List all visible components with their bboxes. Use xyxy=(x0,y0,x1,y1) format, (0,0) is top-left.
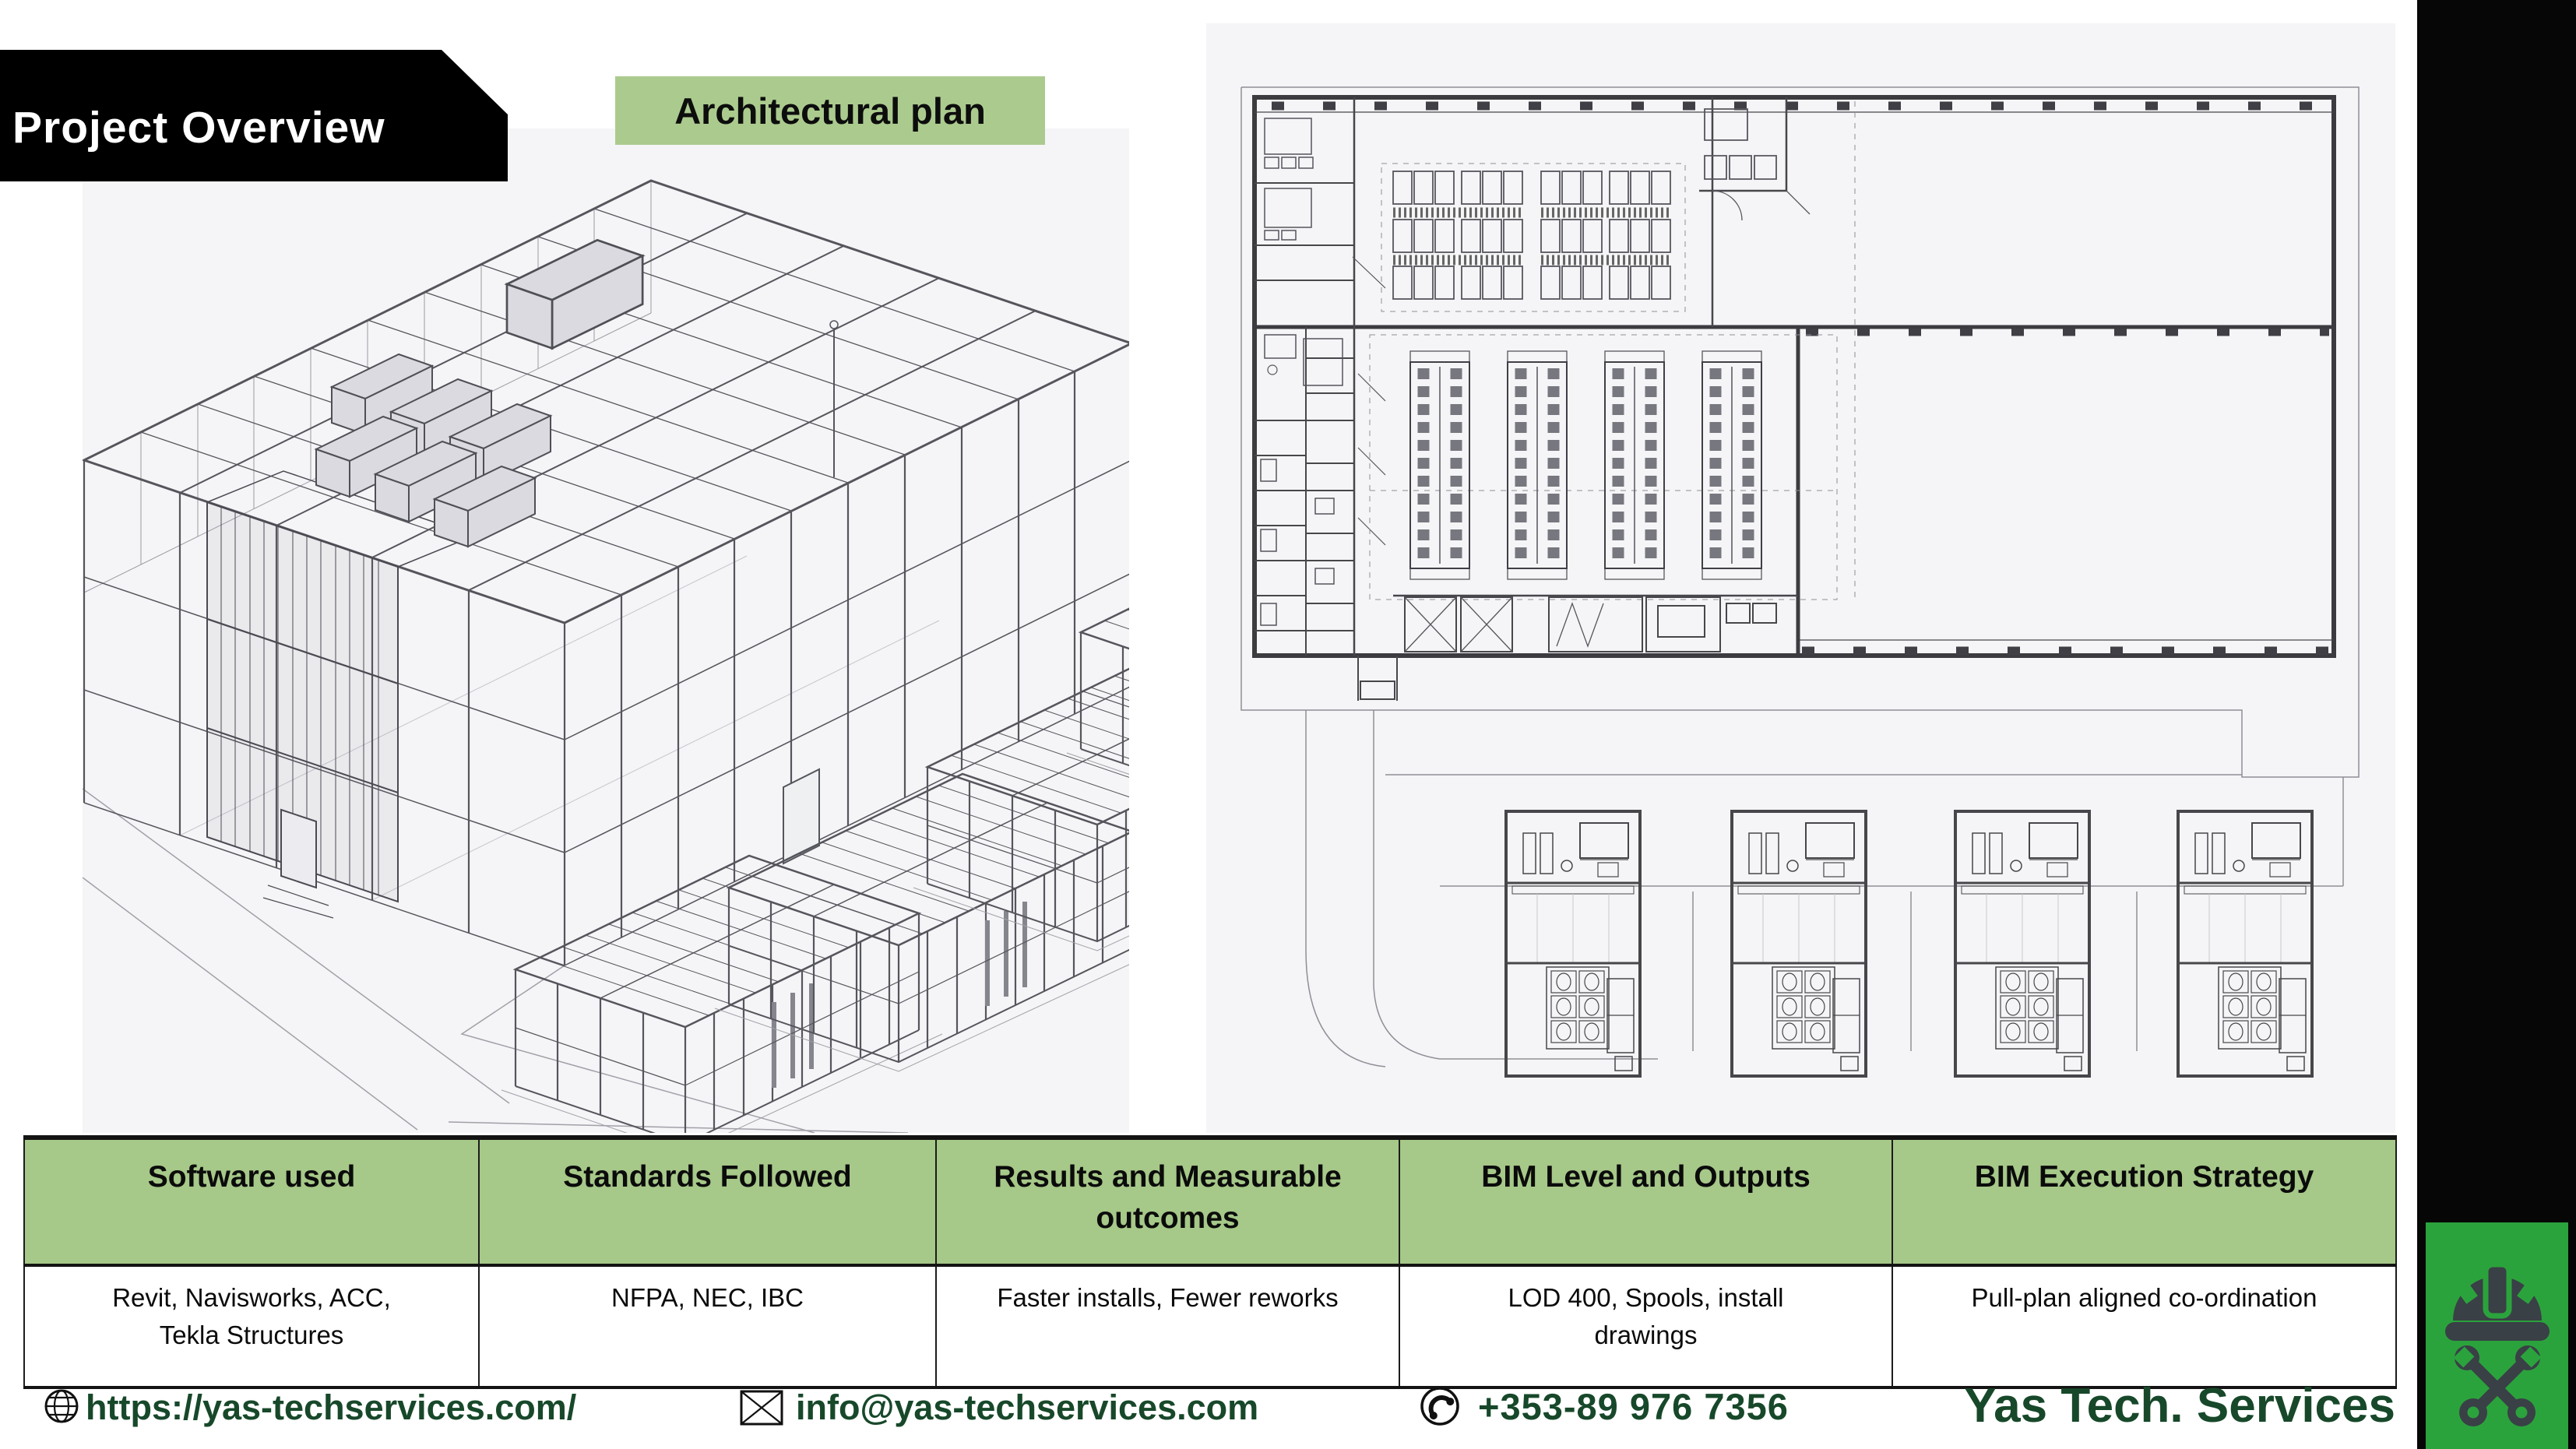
isometric-drawing-area xyxy=(83,128,1129,1133)
header-software-used: Software used xyxy=(24,1138,479,1265)
website-link[interactable]: https://yas-techservices.com/ xyxy=(86,1387,576,1428)
cell-bim-execution-strategy: Pull-plan aligned co-ordination xyxy=(1892,1265,2396,1387)
phone-number: +353-89 976 7356 xyxy=(1478,1385,1789,1428)
header-standards-followed: Standards Followed xyxy=(479,1138,936,1265)
globe-icon xyxy=(43,1387,80,1425)
image-caption-label: Architectural plan xyxy=(615,76,1045,145)
header-bim-execution-strategy: BIM Execution Strategy xyxy=(1892,1138,2396,1265)
table-row: Revit, Navisworks, ACC, Tekla Structures… xyxy=(24,1265,2396,1387)
project-specs-table: Software used Standards Followed Results… xyxy=(23,1135,2397,1389)
title-banner: Project Overview xyxy=(0,50,508,181)
cell-results-outcomes: Faster installs, Fewer reworks xyxy=(936,1265,1399,1387)
header-bim-level-outputs: BIM Level and Outputs xyxy=(1399,1138,1892,1265)
email-link[interactable]: info@yas-techservices.com xyxy=(796,1387,1258,1428)
isometric-wireframe-drawing xyxy=(83,128,1129,1133)
architectural-floorplan-drawing xyxy=(1206,23,2395,1133)
cell-bim-level-outputs: LOD 400, Spools, install drawings xyxy=(1399,1265,1892,1387)
hardhat-crossed-wrenches-icon xyxy=(2439,1243,2556,1430)
table-header-row: Software used Standards Followed Results… xyxy=(24,1138,2396,1265)
slide-canvas: Project Overview Architectural plan Soft… xyxy=(0,0,2576,1449)
sidebar-black-strip xyxy=(2417,0,2576,1449)
phone-circle-icon xyxy=(1419,1385,1461,1427)
company-logo xyxy=(2426,1222,2568,1449)
floorplan-drawing-area xyxy=(1206,23,2395,1133)
company-name: Yas Tech. Services xyxy=(1964,1378,2395,1433)
header-results-outcomes: Results and Measurable outcomes xyxy=(936,1138,1399,1265)
page-title: Project Overview xyxy=(12,102,385,153)
cell-standards-followed: NFPA, NEC, IBC xyxy=(479,1265,936,1387)
cell-software-used: Revit, Navisworks, ACC, Tekla Structures xyxy=(24,1265,479,1387)
envelope-icon xyxy=(740,1390,783,1426)
